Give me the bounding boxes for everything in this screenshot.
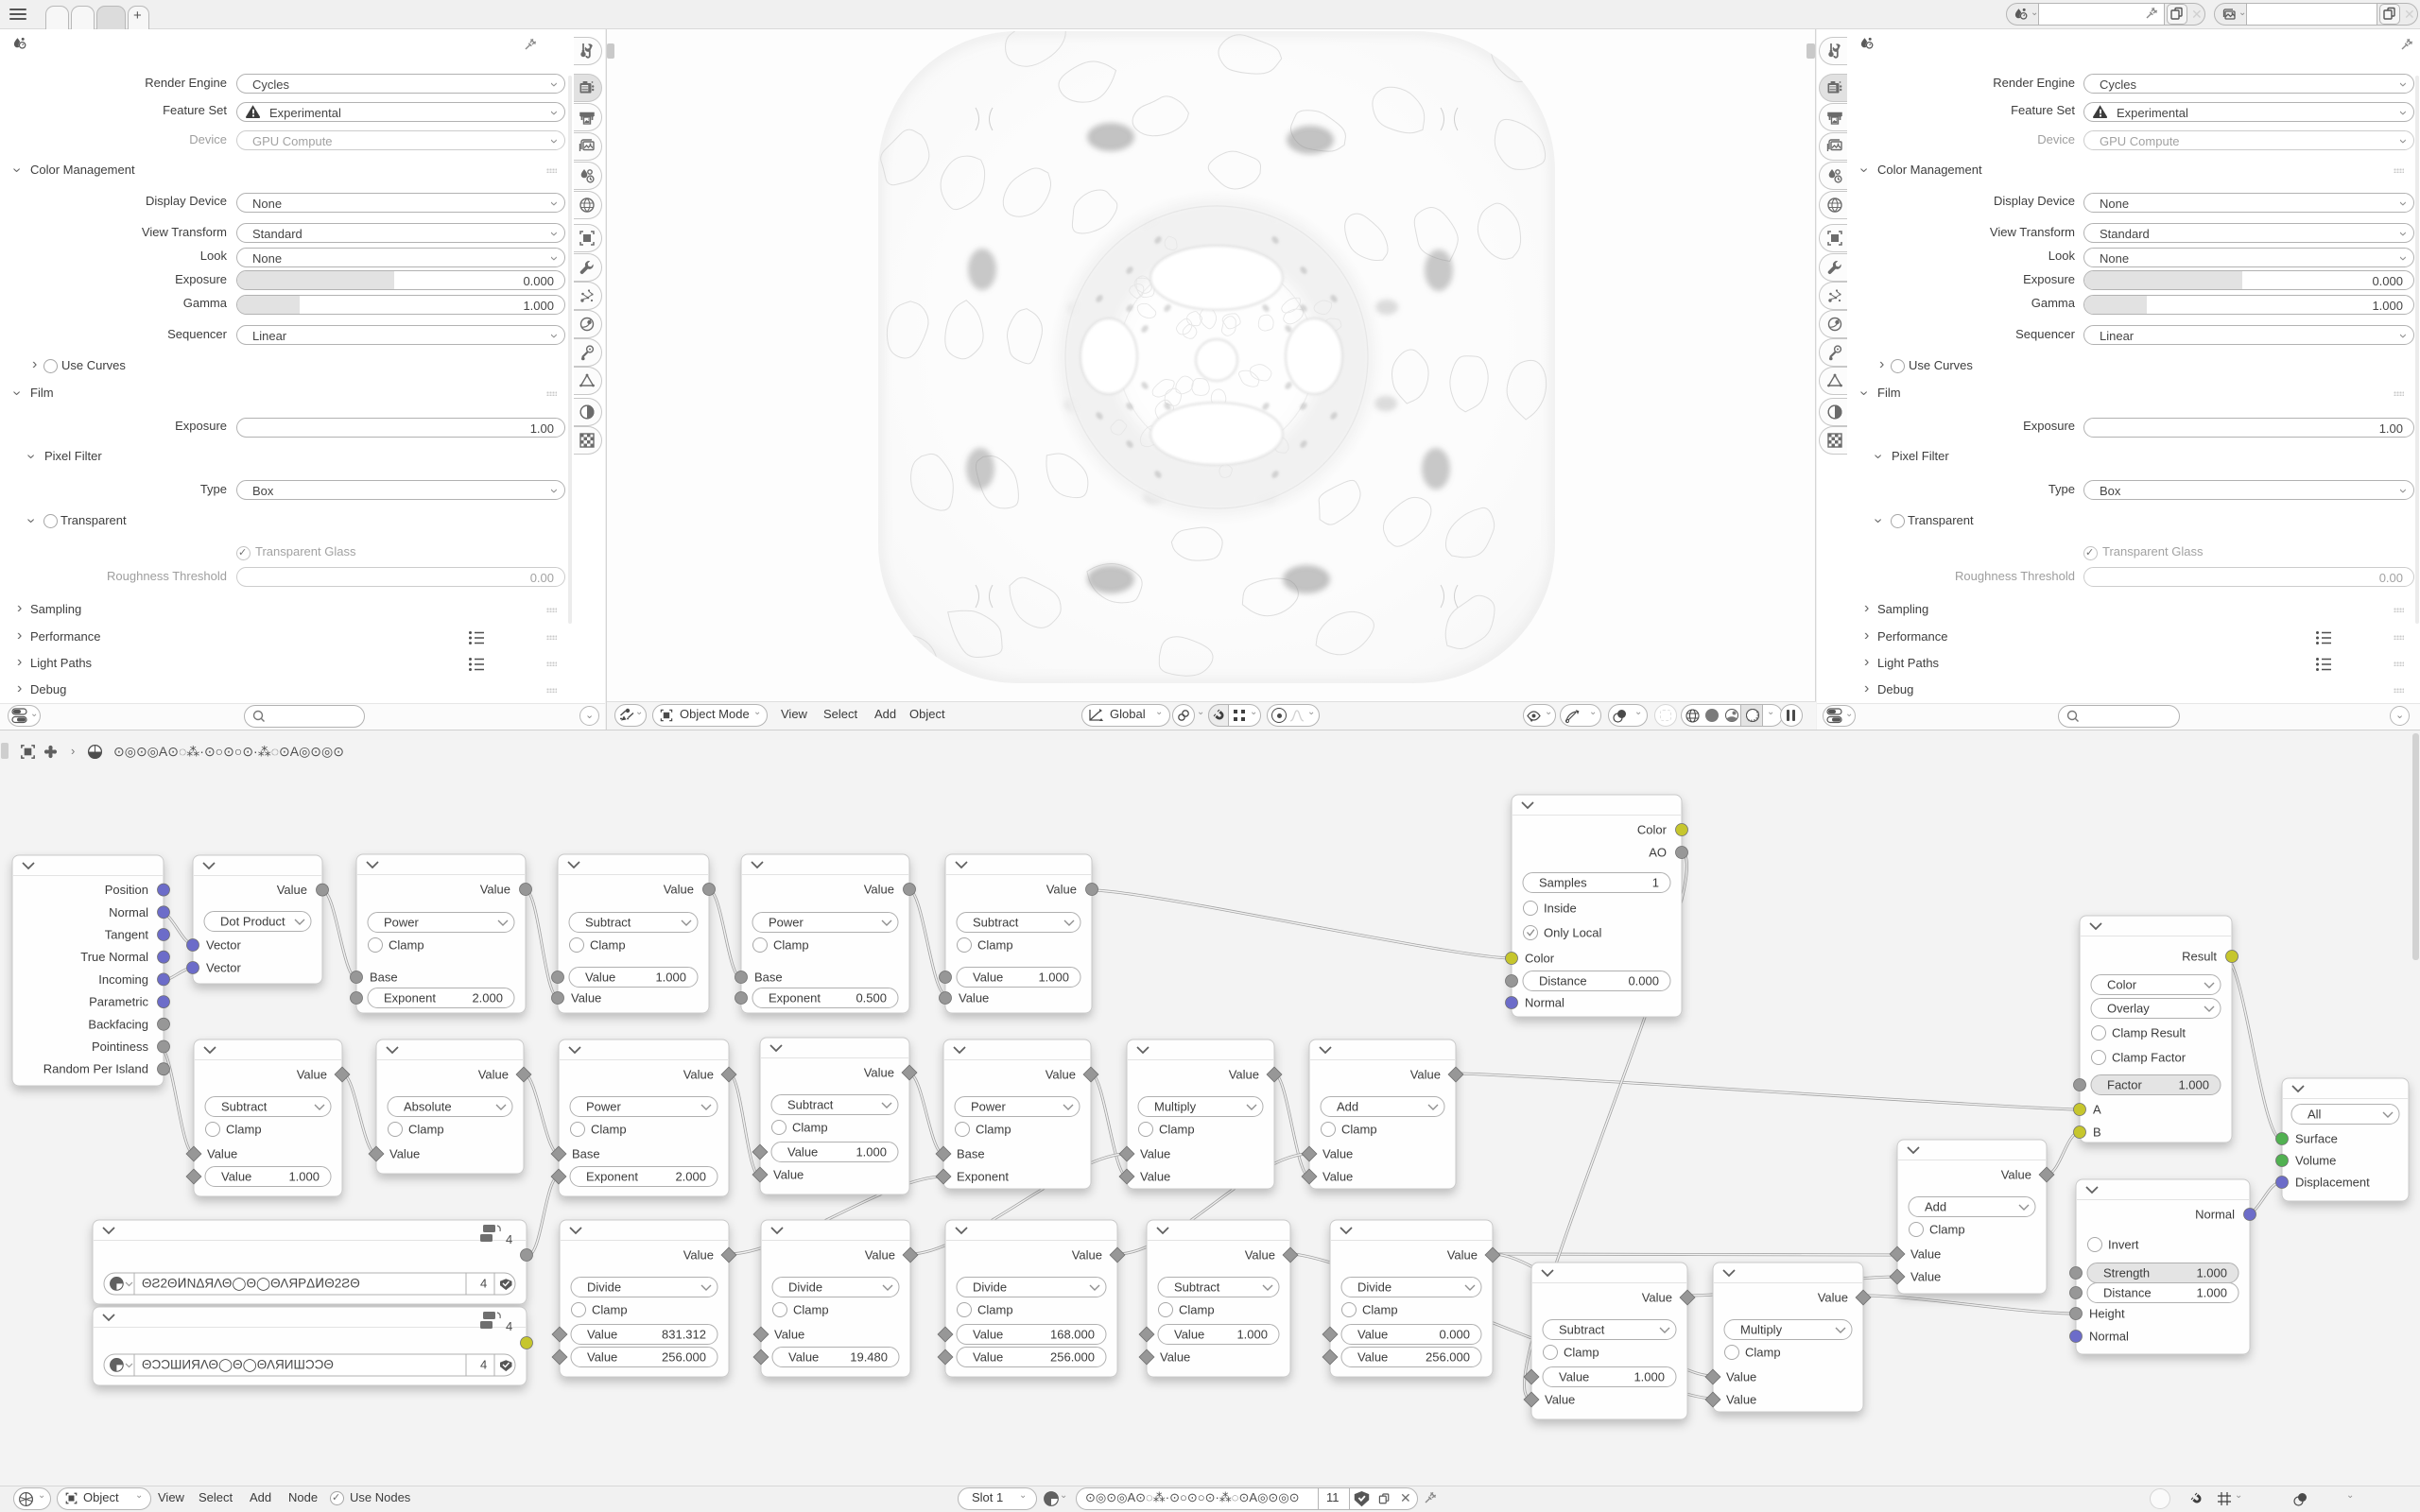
svg-text:Value: Value (1818, 1291, 1848, 1305)
svg-text:Value: Value (1174, 1328, 1204, 1342)
svg-text:Add: Add (1925, 1200, 1946, 1214)
svg-text:4: 4 (480, 1277, 487, 1291)
svg-text:Value: Value (1046, 883, 1077, 897)
svg-text:Tangent: Tangent (105, 928, 149, 942)
svg-text:ΘƧ2ΘͶΝΔЯΛΘ◯Θ◯ΘΛЯРΔͶΘ2ƧΘ: ΘƧ2ΘͶΝΔЯΛΘ◯Θ◯ΘΛЯРΔͶΘ2ƧΘ (142, 1277, 360, 1292)
svg-text:Clamp: Clamp (1159, 1123, 1195, 1137)
svg-text:Base: Base (957, 1147, 985, 1161)
svg-text:Value: Value (864, 1066, 894, 1080)
svg-text:Random Per Island: Random Per Island (43, 1062, 148, 1076)
svg-text:Normal: Normal (1525, 996, 1564, 1010)
svg-text:0.000: 0.000 (1628, 974, 1659, 988)
svg-text:Power: Power (384, 916, 420, 930)
svg-text:Value: Value (683, 1248, 714, 1263)
svg-text:Factor: Factor (2107, 1078, 2143, 1092)
svg-text:0.500: 0.500 (856, 991, 887, 1005)
svg-text:Clamp: Clamp (976, 1123, 1011, 1137)
svg-text:Subtract: Subtract (973, 916, 1019, 930)
svg-text:831.312: 831.312 (662, 1328, 706, 1342)
svg-text:Normal: Normal (2089, 1330, 2129, 1344)
svg-text:Divide: Divide (587, 1280, 621, 1295)
svg-text:Value: Value (788, 1350, 819, 1365)
svg-text:1: 1 (1652, 876, 1659, 890)
svg-text:Pointiness: Pointiness (92, 1039, 148, 1054)
svg-text:Parametric: Parametric (89, 995, 148, 1009)
svg-text:Value: Value (959, 991, 989, 1005)
svg-text:Value: Value (2001, 1168, 2031, 1182)
svg-text:4: 4 (506, 1319, 512, 1333)
svg-text:Displacement: Displacement (2295, 1176, 2370, 1190)
svg-text:Value: Value (683, 1068, 714, 1082)
svg-text:Base: Base (754, 971, 783, 985)
svg-text:Invert: Invert (2108, 1238, 2139, 1252)
svg-text:Value: Value (1642, 1291, 1672, 1305)
svg-text:Value: Value (207, 1147, 237, 1161)
svg-text:Clamp: Clamp (773, 938, 809, 953)
svg-text:Divide: Divide (788, 1280, 822, 1295)
svg-text:Value: Value (1726, 1393, 1756, 1407)
svg-text:Value: Value (587, 1350, 617, 1365)
svg-text:256.000: 256.000 (1050, 1350, 1095, 1365)
svg-text:1.000: 1.000 (288, 1170, 320, 1184)
svg-text:Volume: Volume (2295, 1154, 2336, 1168)
svg-text:Value: Value (1245, 1248, 1275, 1263)
svg-text:Value: Value (973, 1350, 1003, 1365)
svg-text:Value: Value (1410, 1068, 1441, 1082)
svg-text:Exponent: Exponent (957, 1170, 1009, 1184)
svg-text:Base: Base (572, 1147, 600, 1161)
svg-text:Normal: Normal (2195, 1208, 2235, 1222)
svg-text:Value: Value (973, 971, 1003, 985)
svg-text:1.000: 1.000 (1038, 971, 1069, 985)
svg-text:Value: Value (1160, 1350, 1190, 1365)
svg-text:0.000: 0.000 (1439, 1328, 1470, 1342)
svg-text:Clamp Result: Clamp Result (2112, 1026, 2186, 1040)
svg-text:Clamp Factor: Clamp Factor (2112, 1051, 2187, 1065)
svg-text:Clamp: Clamp (590, 938, 626, 953)
svg-text:Only Local: Only Local (1544, 926, 1602, 940)
svg-text:Vector: Vector (206, 938, 242, 953)
svg-text:Color: Color (1525, 952, 1555, 966)
svg-text:Subtract: Subtract (787, 1098, 834, 1112)
svg-text:256.000: 256.000 (1426, 1350, 1470, 1365)
svg-text:19.480: 19.480 (850, 1350, 888, 1365)
svg-text:Value: Value (297, 1068, 327, 1082)
svg-text:Vector: Vector (206, 961, 242, 975)
svg-text:Clamp: Clamp (592, 1303, 628, 1317)
svg-text:A: A (2093, 1103, 2101, 1117)
svg-text:2.000: 2.000 (675, 1170, 706, 1184)
svg-text:Subtract: Subtract (1559, 1323, 1605, 1337)
svg-text:Clamp: Clamp (389, 938, 424, 953)
svg-text:Exponent: Exponent (586, 1170, 638, 1184)
svg-text:Clamp: Clamp (1179, 1303, 1215, 1317)
svg-text:Result: Result (2182, 950, 2217, 964)
svg-text:Incoming: Incoming (98, 972, 148, 987)
svg-text:Value: Value (787, 1145, 818, 1160)
svg-text:Power: Power (769, 916, 804, 930)
svg-text:Exponent: Exponent (384, 991, 436, 1005)
svg-text:Distance: Distance (1539, 974, 1587, 988)
svg-text:4: 4 (506, 1232, 512, 1246)
svg-text:2.000: 2.000 (472, 991, 503, 1005)
svg-text:Value: Value (587, 1328, 617, 1342)
svg-text:Subtract: Subtract (221, 1100, 268, 1114)
svg-text:AO: AO (1649, 846, 1667, 860)
svg-text:Strength: Strength (2103, 1266, 2150, 1280)
svg-text:Clamp: Clamp (792, 1121, 828, 1135)
svg-text:Value: Value (1559, 1370, 1589, 1384)
svg-text:Value: Value (1322, 1170, 1353, 1184)
svg-text:Power: Power (586, 1100, 622, 1114)
svg-text:Dot Product: Dot Product (220, 915, 285, 929)
svg-text:Inside: Inside (1544, 902, 1577, 916)
svg-text:All: All (2308, 1108, 2322, 1122)
svg-text:Value: Value (478, 1068, 509, 1082)
svg-text:Value: Value (1357, 1328, 1388, 1342)
svg-text:Backfacing: Backfacing (88, 1017, 148, 1031)
svg-text:Subtract: Subtract (1174, 1280, 1220, 1295)
svg-text:Value: Value (1140, 1170, 1170, 1184)
svg-text:Value: Value (389, 1147, 420, 1161)
svg-text:Normal: Normal (109, 905, 148, 919)
svg-text:Value: Value (571, 991, 601, 1005)
svg-text:256.000: 256.000 (662, 1350, 706, 1365)
svg-text:Value: Value (277, 883, 307, 897)
svg-text:Value: Value (1046, 1068, 1076, 1082)
svg-text:Divide: Divide (1357, 1280, 1391, 1295)
svg-text:Distance: Distance (2103, 1286, 2152, 1300)
svg-text:1.000: 1.000 (2196, 1286, 2227, 1300)
svg-text:Value: Value (1140, 1147, 1170, 1161)
svg-text:Absolute: Absolute (404, 1100, 452, 1114)
svg-text:Clamp: Clamp (1362, 1303, 1398, 1317)
svg-text:Height: Height (2089, 1307, 2125, 1321)
svg-text:Multiply: Multiply (1154, 1100, 1197, 1114)
svg-text:Value: Value (1910, 1247, 1941, 1262)
svg-text:Color: Color (1637, 823, 1668, 837)
svg-text:ΘƆƆШИЯΛΘ◯Θ◯ΘΛЯИШƆƆΘ: ΘƆƆШИЯΛΘ◯Θ◯ΘΛЯИШƆƆΘ (142, 1358, 334, 1373)
svg-text:Color: Color (2107, 978, 2137, 992)
svg-text:Exponent: Exponent (769, 991, 821, 1005)
svg-text:Value: Value (1357, 1350, 1388, 1365)
svg-text:Value: Value (774, 1328, 804, 1342)
svg-text:Add: Add (1337, 1100, 1358, 1114)
svg-text:4: 4 (480, 1358, 487, 1372)
svg-text:Value: Value (1322, 1147, 1353, 1161)
svg-text:1.000: 1.000 (2196, 1266, 2227, 1280)
svg-text:Value: Value (865, 1248, 895, 1263)
svg-text:Clamp: Clamp (408, 1123, 444, 1137)
svg-text:True Normal: True Normal (80, 950, 148, 964)
svg-text:1.000: 1.000 (655, 971, 686, 985)
svg-text:Value: Value (664, 883, 694, 897)
svg-text:Value: Value (973, 1328, 1003, 1342)
svg-text:Surface: Surface (2295, 1132, 2338, 1146)
svg-text:B: B (2093, 1125, 2101, 1140)
svg-text:1.000: 1.000 (1236, 1328, 1268, 1342)
svg-text:Clamp: Clamp (591, 1123, 627, 1137)
svg-text:Power: Power (971, 1100, 1007, 1114)
svg-text:Value: Value (1072, 1248, 1102, 1263)
svg-text:Clamp: Clamp (977, 1303, 1013, 1317)
svg-text:Value: Value (773, 1168, 804, 1182)
svg-text:Value: Value (1447, 1248, 1478, 1263)
svg-text:Value: Value (1910, 1270, 1941, 1284)
svg-text:Divide: Divide (973, 1280, 1007, 1295)
svg-text:Overlay: Overlay (2107, 1002, 2150, 1016)
svg-text:Clamp: Clamp (1929, 1223, 1965, 1237)
svg-text:Value: Value (864, 883, 894, 897)
svg-text:Value: Value (585, 971, 615, 985)
svg-text:Position: Position (105, 883, 148, 897)
svg-text:1.000: 1.000 (1633, 1370, 1665, 1384)
svg-text:Clamp: Clamp (1341, 1123, 1377, 1137)
svg-text:Base: Base (370, 971, 398, 985)
svg-text:Clamp: Clamp (793, 1303, 829, 1317)
svg-text:Value: Value (1726, 1370, 1756, 1384)
svg-text:Multiply: Multiply (1740, 1323, 1783, 1337)
svg-text:Value: Value (480, 883, 510, 897)
svg-text:Value: Value (221, 1170, 251, 1184)
svg-text:Clamp: Clamp (226, 1123, 262, 1137)
svg-text:Value: Value (1229, 1068, 1259, 1082)
svg-text:1.000: 1.000 (2178, 1078, 2209, 1092)
svg-text:Subtract: Subtract (585, 916, 631, 930)
svg-text:1.000: 1.000 (856, 1145, 887, 1160)
svg-text:Value: Value (1545, 1393, 1575, 1407)
svg-text:Clamp: Clamp (1745, 1346, 1781, 1360)
svg-text:Clamp: Clamp (1564, 1346, 1599, 1360)
svg-text:Clamp: Clamp (977, 938, 1013, 953)
svg-text:168.000: 168.000 (1050, 1328, 1095, 1342)
svg-text:Samples: Samples (1539, 876, 1587, 890)
